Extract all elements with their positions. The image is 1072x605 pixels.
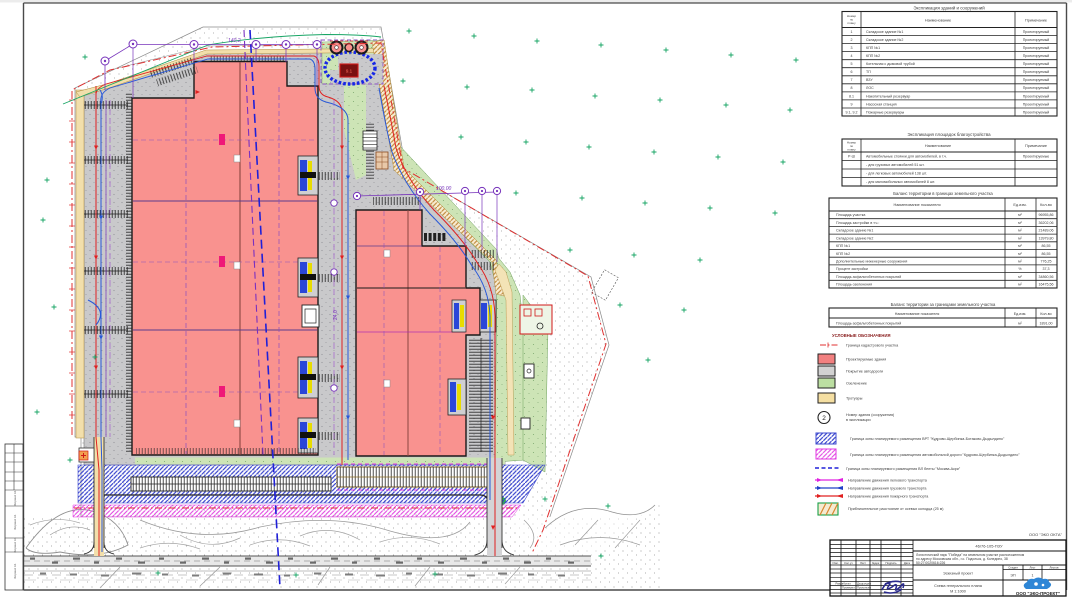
svg-text:Дата: Дата [904, 561, 911, 565]
svg-text:Озеленение: Озеленение [846, 382, 867, 386]
svg-text:Проектируемый: Проектируемый [1023, 46, 1050, 50]
svg-text:Баланс территории за границами: Баланс территории за границами земельног… [891, 302, 996, 307]
svg-text:Проектируемый: Проектируемый [1023, 86, 1050, 90]
svg-text:6: 6 [851, 70, 853, 74]
svg-text:Прокопьев: Прокопьев [857, 586, 871, 590]
svg-text:86,55: 86,55 [1042, 244, 1051, 248]
svg-text:Площадь застройки в т.ч.:: Площадь застройки в т.ч.: [836, 221, 879, 225]
svg-text:1: 1 [1032, 574, 1034, 578]
svg-text:Проектируемый: Проектируемый [1023, 70, 1050, 74]
svg-text:Проектируемый: Проектируемый [1023, 102, 1050, 106]
svg-text:Примечание: Примечание [1025, 144, 1047, 148]
svg-text:ЭП: ЭП [1010, 574, 1016, 578]
svg-text:Кол.уч: Кол.уч [844, 561, 853, 565]
svg-text:Дополнительные инженерные соор: Дополнительные инженерные сооружения [836, 259, 907, 263]
svg-text:Проверил: Проверил [842, 586, 855, 590]
svg-text:776,25: 776,25 [1041, 259, 1052, 263]
svg-text:Складское здание №1: Складское здание №1 [836, 229, 873, 233]
svg-text:Проектируемый: Проектируемый [1023, 54, 1050, 58]
svg-text:Граница зоны планируемого разм: Граница зоны планируемого размещения ВРТ… [850, 437, 1005, 441]
svg-text:Котельная с дымовой трубой: Котельная с дымовой трубой [866, 62, 915, 66]
svg-text:Направление движения пожарного: Направление движения пожарного транспорт… [848, 495, 929, 499]
svg-text:3: 3 [851, 46, 853, 50]
svg-text:Листов: Листов [1049, 566, 1059, 570]
svg-text:Направление движения легкового: Направление движения легкового транспорт… [848, 479, 928, 483]
svg-text:140,2: 140,2 [228, 38, 241, 44]
svg-text:ООО "ЭКО-ПРОЕКТ": ООО "ЭКО-ПРОЕКТ" [1016, 591, 1060, 596]
svg-text:КПП №2: КПП №2 [836, 252, 850, 256]
svg-text:96955,86: 96955,86 [1039, 213, 1054, 217]
svg-text:Наименование показателя: Наименование показателя [893, 203, 940, 207]
svg-text:Формат А1: Формат А1 [13, 490, 17, 505]
svg-text:Формат А1: Формат А1 [13, 563, 17, 578]
svg-text:Направление движения грузового: Направление движения грузового транспорт… [848, 487, 927, 491]
svg-text:Изм.: Изм. [833, 561, 839, 565]
svg-text:Лист: Лист [860, 561, 867, 565]
svg-text:Тротуары: Тротуары [846, 397, 863, 401]
svg-text:36202,06: 36202,06 [1039, 221, 1054, 225]
svg-text:4: 4 [851, 54, 853, 58]
svg-text:Граница зоны планируемого разм: Граница зоны планируемого размещения авт… [850, 453, 1020, 457]
svg-text:ВЗУ: ВЗУ [866, 78, 873, 82]
svg-text:8: 8 [851, 86, 853, 90]
svg-text:46/76-105-ПЗУ: 46/76-105-ПЗУ [975, 544, 1003, 549]
svg-text:34860,56: 34860,56 [1039, 275, 1054, 279]
svg-text:Номер здания (сооружения): Номер здания (сооружения) [846, 413, 894, 417]
svg-text:5: 5 [851, 62, 853, 66]
svg-text:Баланс территории в границах з: Баланс территории в границах земельного … [893, 191, 993, 196]
svg-text:Схема генерального плана: Схема генерального плана [934, 584, 983, 588]
svg-text:ООО "ЭКО ОКТА": ООО "ЭКО ОКТА" [1029, 532, 1063, 537]
svg-text:Пожарные резервуары: Пожарные резервуары [866, 110, 905, 114]
svg-text:Эскизный проект: Эскизный проект [943, 572, 973, 576]
svg-text:9.1: 9.1 [346, 69, 353, 74]
svg-text:Проектируемые: Проектируемые [1023, 155, 1050, 159]
svg-text:Р-Ш: Р-Ш [848, 155, 855, 159]
svg-text:Наименование показателя: Наименование показателя [895, 312, 940, 316]
svg-text:Кол-во: Кол-во [1040, 312, 1051, 316]
svg-text:Граница кадастрового участка: Граница кадастрового участка [846, 344, 899, 348]
svg-text:Площадь асфальтобетонных покры: Площадь асфальтобетонных покрытий [836, 275, 901, 279]
svg-text:Стадия: Стадия [1008, 566, 1018, 570]
svg-text:1891,00: 1891,00 [1040, 322, 1053, 326]
svg-text:13979,80: 13979,80 [1039, 236, 1054, 240]
svg-text:Проектируемый: Проектируемый [1023, 94, 1050, 98]
svg-text:Примечание: Примечание [1025, 19, 1047, 23]
svg-text:Проектируемый: Проектируемый [1023, 110, 1050, 114]
svg-text:Формат А1: Формат А1 [13, 514, 17, 529]
svg-text:Ед.изм.: Ед.изм. [1014, 312, 1027, 316]
svg-text:Складское здание №2: Складское здание №2 [866, 38, 903, 42]
svg-text:- для легковых автомобилей 138: - для легковых автомобилей 138 шт. [866, 172, 927, 176]
svg-text:Проектируемый: Проектируемый [1023, 62, 1050, 66]
svg-text:Проектируемый: Проектируемый [1023, 78, 1050, 82]
svg-text:КПП №1: КПП №1 [836, 244, 850, 248]
svg-text:ТП: ТП [866, 70, 871, 74]
svg-text:1: 1 [851, 30, 853, 34]
svg-text:Экспликация площадок благоустр: Экспликация площадок благоустройства [907, 132, 991, 137]
svg-text:Подпись: Подпись [885, 561, 897, 565]
svg-text:2: 2 [851, 38, 853, 42]
svg-text:Приблизительное расстояние от: Приблизительное расстояние от осевых кол… [848, 507, 943, 511]
svg-text:86,55: 86,55 [1042, 252, 1051, 256]
svg-text:Проектируемый: Проектируемый [1023, 38, 1050, 42]
svg-text:9: 9 [851, 102, 853, 106]
svg-text:2: 2 [822, 415, 826, 422]
svg-text:Процент застройки: Процент застройки [836, 267, 868, 271]
svg-text:Лист: Лист [1029, 566, 1036, 570]
svg-text:- для грузовых автомобилей 51: - для грузовых автомобилей 51 шт. [866, 163, 925, 167]
svg-text:7: 7 [851, 78, 853, 82]
svg-text:КПП №1: КПП №1 [866, 46, 880, 50]
svg-text:8.1: 8.1 [849, 94, 854, 98]
svg-text:УСЛОВНЫЕ ОБОЗНАЧЕНИЯ: УСЛОВНЫЕ ОБОЗНАЧЕНИЯ [832, 333, 890, 338]
svg-text:9.1, 9.2: 9.1, 9.2 [846, 110, 858, 114]
svg-text:Кол-во: Кол-во [1040, 203, 1052, 207]
svg-text:Покрытие автодороги: Покрытие автодороги [846, 370, 883, 374]
svg-text:21489,06: 21489,06 [1039, 229, 1054, 233]
svg-text:Наименование: Наименование [925, 19, 951, 23]
svg-text:100,00: 100,00 [436, 186, 452, 192]
svg-text:24,0: 24,0 [333, 310, 339, 320]
svg-text:Проектируемые здания: Проектируемые здания [846, 358, 886, 362]
svg-text:Площадь асфальтобетонных покры: Площадь асфальтобетонных покрытий [836, 322, 901, 326]
svg-text:37,3: 37,3 [1043, 267, 1050, 271]
svg-text:Автомобильные стоянки для авто: Автомобильные стоянки для автомобилей, в… [866, 155, 947, 159]
svg-text:М 1:1000: М 1:1000 [950, 590, 966, 594]
svg-text:Проектируемый: Проектируемый [1023, 30, 1050, 34]
svg-text:- для маломобильных автомобиле: - для маломобильных автомобилей 8 шт. [866, 180, 935, 184]
svg-text:Накопительный резервуар: Накопительный резервуар [866, 94, 910, 98]
svg-text:Площадь озеленения: Площадь озеленения [836, 283, 872, 287]
svg-text:Экспликация зданий и сооружени: Экспликация зданий и сооружений [913, 6, 985, 11]
svg-text:Наименование: Наименование [925, 144, 951, 148]
svg-text:50:27:0020616:226: 50:27:0020616:226 [916, 561, 945, 565]
svg-text:Складское здание №1: Складское здание №1 [866, 30, 903, 34]
svg-text:КПП №2: КПП №2 [866, 54, 880, 58]
svg-text:Складское здание №2: Складское здание №2 [836, 236, 873, 240]
svg-text:плану: плану [847, 148, 856, 152]
svg-text:плану: плану [847, 21, 856, 25]
svg-text:ЛОС: ЛОС [866, 86, 874, 90]
svg-text:№док: №док [872, 561, 880, 565]
svg-text:Формат А1: Формат А1 [13, 537, 17, 552]
svg-text:Граница зоны планируемого разм: Граница зоны планируемого размещения ВЛ … [846, 467, 961, 471]
svg-text:Насосная станция: Насосная станция [866, 102, 897, 106]
svg-text:в экспликации: в экспликации [846, 418, 871, 422]
svg-text:Ед.изм.: Ед.изм. [1013, 203, 1026, 207]
svg-text:Площадь участка: Площадь участка [836, 213, 865, 217]
svg-text:16475,56: 16475,56 [1039, 283, 1054, 287]
